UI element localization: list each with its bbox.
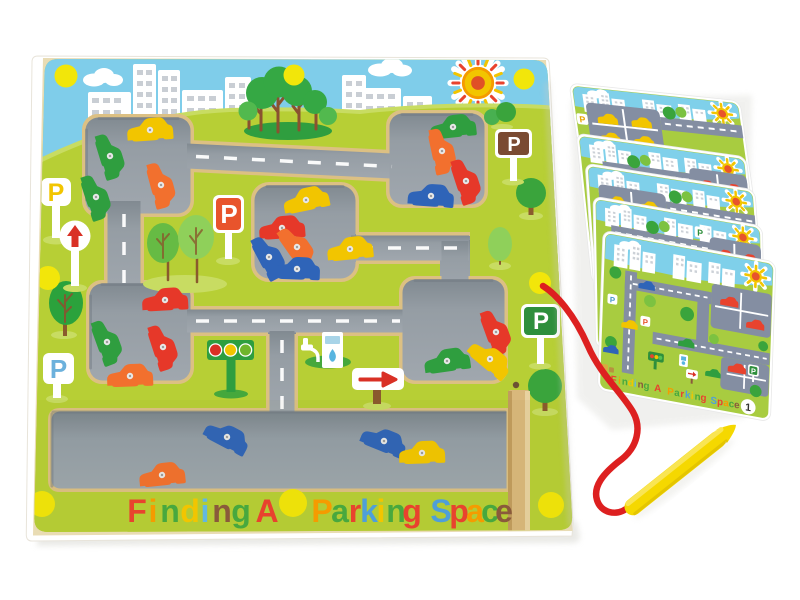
svg-text:n: n (212, 493, 232, 529)
svg-text:P: P (643, 317, 649, 327)
svg-text:P: P (507, 134, 520, 156)
svg-text:g: g (231, 493, 251, 529)
svg-text:P: P (533, 308, 549, 335)
svg-text:P: P (48, 179, 65, 207)
svg-text:i: i (201, 493, 210, 529)
svg-text:i: i (149, 493, 158, 529)
svg-text:e: e (734, 400, 740, 412)
svg-text:P: P (220, 199, 237, 229)
svg-text:g: g (700, 392, 706, 404)
svg-text:F: F (127, 493, 147, 529)
svg-text:P: P (697, 227, 703, 238)
svg-text:e: e (495, 493, 513, 529)
svg-text:g: g (402, 493, 422, 529)
svg-text:g: g (643, 380, 649, 392)
svg-text:P: P (311, 493, 332, 529)
svg-text:a: a (331, 493, 349, 529)
svg-text:P: P (610, 295, 616, 305)
svg-text:k: k (360, 493, 378, 529)
svg-text:i: i (377, 493, 386, 529)
svg-text:A: A (654, 383, 661, 395)
svg-text:n: n (160, 493, 180, 529)
svg-text:A: A (255, 493, 278, 529)
svg-text:P: P (50, 354, 67, 384)
svg-text:P: P (751, 366, 756, 376)
svg-text:d: d (180, 493, 200, 529)
svg-text:1: 1 (745, 402, 751, 414)
